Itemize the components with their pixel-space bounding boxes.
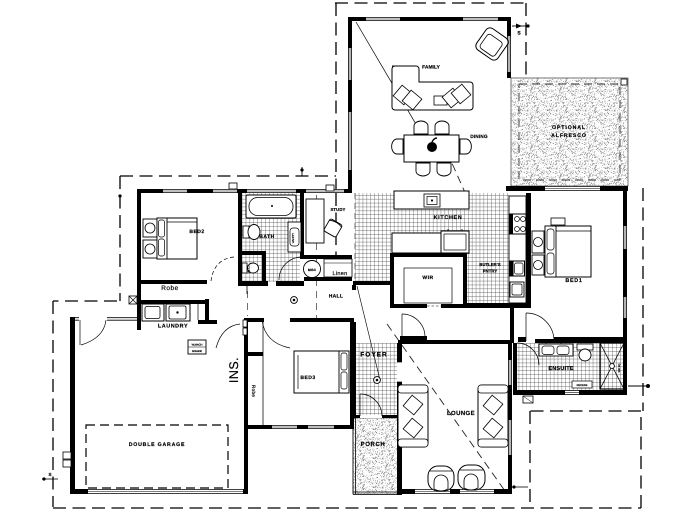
svg-text:BED3: BED3 bbox=[300, 375, 315, 381]
svg-text:BATH: BATH bbox=[259, 234, 275, 240]
svg-text:VANITY: VANITY bbox=[291, 233, 295, 244]
svg-text:FOYER: FOYER bbox=[360, 352, 387, 359]
svg-text:LAUNDRY: LAUNDRY bbox=[158, 324, 188, 330]
svg-text:FAMILY: FAMILY bbox=[422, 65, 440, 71]
svg-text:DOUBLE GARAGE: DOUBLE GARAGE bbox=[129, 442, 186, 448]
svg-text:OPTIONAL: OPTIONAL bbox=[552, 125, 586, 131]
svg-text:900 SQ: 900 SQ bbox=[618, 364, 621, 373]
svg-text:BUTLER'S: BUTLER'S bbox=[479, 262, 501, 267]
svg-text:MISC: MISC bbox=[308, 268, 317, 272]
svg-text:600x600: 600x600 bbox=[192, 350, 203, 353]
svg-text:WIR: WIR bbox=[422, 275, 433, 281]
svg-text:HALL: HALL bbox=[329, 294, 344, 300]
svg-text:Robe: Robe bbox=[250, 385, 256, 397]
svg-text:INS.: INS. bbox=[227, 357, 241, 383]
svg-text:BED1: BED1 bbox=[565, 278, 582, 284]
svg-text:W.C.: W.C. bbox=[247, 265, 251, 274]
svg-text:KITCHEN: KITCHEN bbox=[434, 215, 463, 221]
svg-text:DINING: DINING bbox=[470, 134, 488, 140]
svg-text:PORCH: PORCH bbox=[361, 441, 386, 448]
svg-text:ALFRESCO: ALFRESCO bbox=[551, 133, 587, 139]
svg-text:RECESS: RECESS bbox=[577, 384, 588, 387]
svg-text:PNTRY: PNTRY bbox=[483, 269, 498, 274]
svg-text:W.MACH: W.MACH bbox=[192, 344, 203, 347]
svg-text:LOUNGE: LOUNGE bbox=[447, 410, 475, 417]
svg-text:S: S bbox=[48, 472, 51, 477]
svg-text:Linen: Linen bbox=[333, 271, 348, 277]
svg-text:BED2: BED2 bbox=[189, 229, 204, 235]
svg-text:Robe: Robe bbox=[161, 285, 179, 292]
svg-text:ENSUITE: ENSUITE bbox=[548, 366, 573, 372]
svg-text:STUDY: STUDY bbox=[330, 207, 345, 212]
